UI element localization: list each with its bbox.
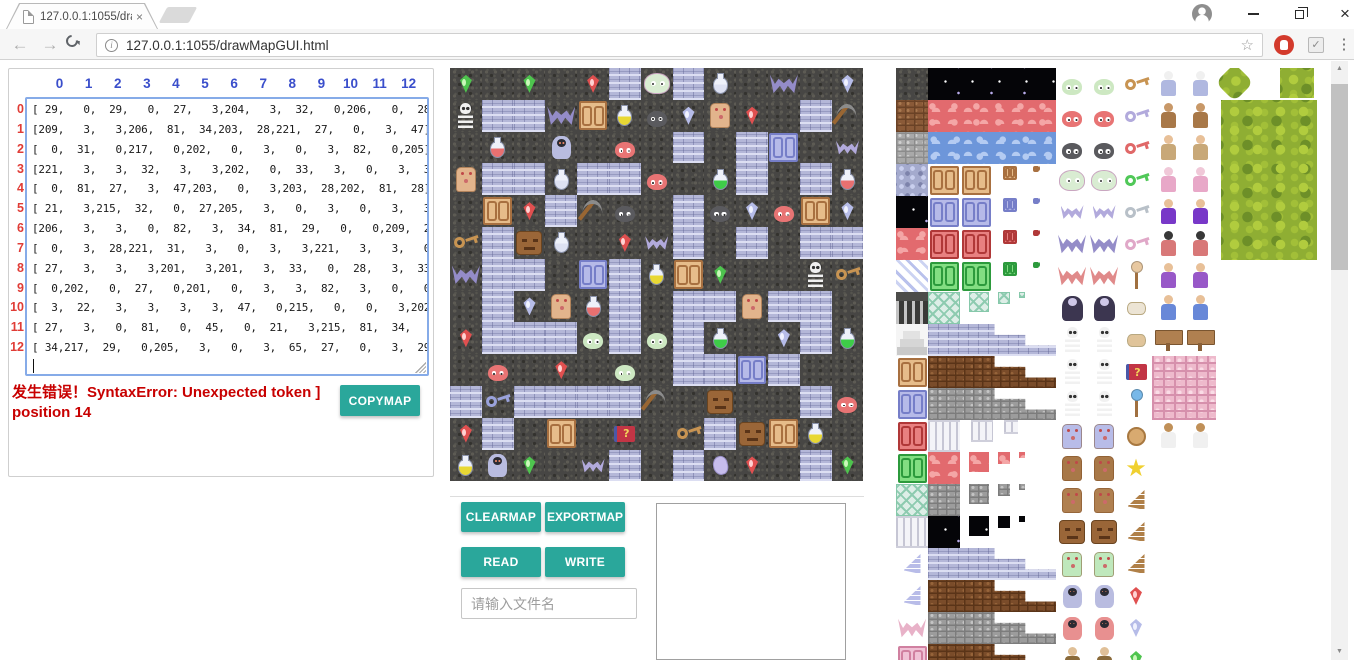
green-gem-tile[interactable] (450, 68, 482, 100)
black-slime-tile[interactable] (609, 195, 641, 227)
small-bush-tile[interactable] (1215, 68, 1253, 102)
magic-book-tile[interactable]: ? (609, 418, 641, 450)
green-slime-tile[interactable] (609, 354, 641, 386)
wall-tile[interactable] (609, 450, 641, 482)
wall-tile[interactable] (514, 386, 546, 418)
url-bar[interactable]: i 127.0.0.1:1055/drawMapGUI.html ☆ (96, 33, 1263, 57)
small-bat-tile[interactable] (832, 132, 864, 164)
wall-tile[interactable] (609, 322, 641, 354)
big-slime-palette-tile[interactable] (1056, 164, 1088, 196)
tan-door-tile[interactable] (545, 418, 577, 450)
skeleton-warrior-palette-tile[interactable] (1088, 356, 1120, 388)
bookmark-star-icon[interactable]: ☆ (1241, 36, 1254, 54)
medal-palette-tile[interactable] (1120, 420, 1152, 452)
scrollbar-down-icon[interactable]: ▼ (1331, 644, 1348, 660)
ice-stripe-palette-tile[interactable] (896, 260, 928, 292)
wall-tile[interactable] (482, 227, 514, 259)
blue-gem-tile[interactable] (768, 322, 800, 354)
big-bat-palette-tile[interactable] (1088, 228, 1120, 260)
green-potion-tile[interactable] (704, 163, 736, 195)
column-palette-tile[interactable] (896, 516, 928, 548)
old-wizard-palette-tile[interactable] (1184, 68, 1216, 100)
prince-palette-tile[interactable] (1184, 260, 1216, 292)
lattice-palette-tile[interactable] (928, 292, 960, 324)
floor-tile[interactable] (736, 68, 768, 100)
column-palette-tile[interactable] (928, 420, 960, 452)
tan-door-tile[interactable] (800, 195, 832, 227)
wall-tile[interactable] (704, 418, 736, 450)
vampire-palette-tile[interactable] (1056, 292, 1088, 324)
lava-palette-tile[interactable] (998, 452, 1010, 464)
big-bat-palette-tile[interactable] (1056, 228, 1088, 260)
wall-tile[interactable] (577, 386, 609, 418)
floor-tile[interactable] (768, 227, 800, 259)
gray-wall-palette-tile[interactable] (928, 484, 960, 516)
red-slime-tile[interactable] (832, 386, 864, 418)
blue-boy-palette-tile[interactable] (1152, 292, 1184, 324)
blue-gem-tile[interactable] (514, 291, 546, 323)
green-potion-tile[interactable] (704, 322, 736, 354)
pickaxe-tile[interactable] (577, 195, 609, 227)
lattice-palette-tile[interactable] (896, 484, 928, 516)
floor-tile[interactable] (577, 227, 609, 259)
pink-wall-palette-tile[interactable] (1152, 388, 1216, 420)
red-bat-palette-tile[interactable] (1056, 260, 1088, 292)
tan-door-palette-tile[interactable] (928, 164, 960, 196)
reload-button[interactable] (66, 35, 90, 59)
red-slime-palette-tile[interactable] (1056, 100, 1088, 132)
copymap-button[interactable]: COPYMAP (340, 385, 420, 416)
red-door-palette-tile[interactable] (896, 420, 928, 452)
wall-tile[interactable] (673, 450, 705, 482)
wall-tile[interactable] (609, 386, 641, 418)
silver-potion-tile[interactable] (545, 227, 577, 259)
blue-door-palette-tile[interactable] (1001, 196, 1018, 213)
tan-door-palette-tile[interactable] (896, 356, 928, 388)
wall-tile[interactable] (800, 450, 832, 482)
floor-tile[interactable] (832, 354, 864, 386)
red-ghost-palette-tile[interactable] (1056, 612, 1088, 644)
floor-tile[interactable] (641, 450, 673, 482)
extension-check-icon[interactable]: ✓ (1308, 37, 1324, 53)
wall-tile[interactable] (545, 195, 577, 227)
floor-tile[interactable] (545, 450, 577, 482)
column-palette-tile[interactable] (971, 420, 993, 442)
blue-key-tile[interactable] (482, 386, 514, 418)
wall-tile[interactable] (800, 322, 832, 354)
wall-tile[interactable] (609, 68, 641, 100)
wall-tile[interactable] (673, 354, 705, 386)
wood-sign-palette-tile[interactable] (1152, 324, 1184, 356)
page-scrollbar[interactable]: ▲ ▼ (1331, 61, 1348, 660)
lavender-key-palette-tile[interactable] (1120, 100, 1152, 132)
red-hood-palette-tile[interactable] (1152, 228, 1184, 260)
vampire-palette-tile[interactable] (1088, 292, 1120, 324)
green-door-palette-tile[interactable] (1031, 260, 1040, 269)
pickaxe-tile[interactable] (832, 100, 864, 132)
floor-tile[interactable] (800, 132, 832, 164)
green-gem-tile[interactable] (514, 450, 546, 482)
black-slime-tile[interactable] (704, 195, 736, 227)
blue-door-tile[interactable] (768, 132, 800, 164)
brown-wing-palette-tile[interactable] (1120, 484, 1152, 516)
browser-menu-icon[interactable]: ⋮ (1336, 33, 1352, 57)
green-door-palette-tile[interactable] (1001, 260, 1018, 277)
floor-tile[interactable] (768, 450, 800, 482)
green-key-palette-tile[interactable] (1120, 164, 1152, 196)
wall-tile[interactable] (514, 259, 546, 291)
brown-wing-palette-tile[interactable] (1120, 516, 1152, 548)
flag-wing-palette-tile[interactable] (1120, 548, 1152, 580)
wall-tile[interactable] (482, 291, 514, 323)
red-door-palette-tile[interactable] (1031, 228, 1040, 237)
wall-tile[interactable] (768, 354, 800, 386)
fighter-palette-tile[interactable] (1152, 132, 1184, 164)
matrix-textarea[interactable]: [ 29, 0, 29, 0, 27, 3,204, 3, 32, 0,206,… (25, 97, 429, 376)
green-gem-palette-tile[interactable] (1120, 644, 1152, 660)
browser-tab[interactable]: 127.0.0.1:1055/drawMa × (6, 3, 158, 29)
column-palette-tile[interactable] (1004, 420, 1018, 434)
wall-tile[interactable] (673, 227, 705, 259)
ghost-tile[interactable] (545, 132, 577, 164)
wall-tile[interactable] (514, 163, 546, 195)
stone-face-palette-tile[interactable] (1056, 516, 1088, 548)
lattice-palette-tile[interactable] (998, 292, 1010, 304)
silver-potion-tile[interactable] (545, 163, 577, 195)
red-slime-tile[interactable] (641, 163, 673, 195)
tan-scroll-palette-tile[interactable] (1120, 324, 1152, 356)
wall-tile[interactable] (704, 354, 736, 386)
wall-tile[interactable] (800, 100, 832, 132)
floor-tile[interactable] (545, 259, 577, 291)
wall-tile[interactable] (800, 386, 832, 418)
gray-wall-palette-tile[interactable] (928, 388, 1056, 420)
floor-tile[interactable] (832, 418, 864, 450)
floor-tile[interactable] (545, 68, 577, 100)
green-door-palette-tile[interactable] (960, 260, 992, 292)
red-gem-tile[interactable] (609, 227, 641, 259)
fairy-palette-tile[interactable] (1152, 164, 1184, 196)
skeleton-palette-tile[interactable] (1088, 324, 1120, 356)
floor-tile[interactable] (800, 354, 832, 386)
floor-palette-tile[interactable] (896, 68, 928, 100)
stone-face-tile[interactable] (704, 386, 736, 418)
tan-door-tile[interactable] (482, 195, 514, 227)
brown-golem-palette-tile[interactable] (1056, 452, 1088, 484)
big-bat-tile[interactable] (545, 100, 577, 132)
floor-tile[interactable] (641, 418, 673, 450)
tan-door-palette-tile[interactable] (1001, 164, 1018, 181)
wall-tile[interactable] (545, 386, 577, 418)
wall-tile[interactable] (673, 291, 705, 323)
floor-tile[interactable] (577, 354, 609, 386)
skeleton-tile[interactable] (450, 100, 482, 132)
ghost-palette-tile[interactable] (1088, 580, 1120, 612)
gray-key-palette-tile[interactable] (1120, 196, 1152, 228)
wall-tile[interactable] (673, 132, 705, 164)
skeleton-captain-palette-tile[interactable] (1056, 388, 1088, 420)
golem-tile[interactable] (736, 291, 768, 323)
window-restore-button[interactable] (1284, 0, 1314, 28)
stone-face-palette-tile[interactable] (1088, 516, 1120, 548)
big-bat-tile[interactable] (768, 68, 800, 100)
wall-tile[interactable] (832, 227, 864, 259)
blue-door-palette-tile[interactable] (928, 196, 960, 228)
skeleton-palette-tile[interactable] (1056, 324, 1088, 356)
green-potion-tile[interactable] (832, 322, 864, 354)
floor-tile[interactable] (736, 322, 768, 354)
night-sky-palette-tile[interactable] (928, 68, 1056, 100)
brown-golem-palette-tile[interactable] (1088, 452, 1120, 484)
scrollbar-up-icon[interactable]: ▲ (1331, 61, 1348, 77)
ghost-tile[interactable] (482, 450, 514, 482)
red-door-palette-tile[interactable] (928, 228, 960, 260)
gray-wall-palette-tile[interactable] (969, 484, 989, 504)
back-button[interactable]: ← (8, 33, 32, 57)
gray-wall-palette-tile[interactable] (1019, 484, 1025, 490)
floor-tile[interactable] (514, 132, 546, 164)
green-gem-tile[interactable] (832, 450, 864, 482)
big-bat-tile[interactable] (450, 259, 482, 291)
blue-gem-tile[interactable] (832, 68, 864, 100)
princess-palette-tile[interactable] (1152, 420, 1184, 452)
wall-tile[interactable] (577, 163, 609, 195)
wall-tile[interactable] (673, 68, 705, 100)
page-info-icon[interactable]: i (105, 39, 118, 52)
wall-tile[interactable] (514, 322, 546, 354)
ghost-palette-tile[interactable] (1056, 580, 1088, 612)
wall-tile[interactable] (736, 132, 768, 164)
yellow-key-tile[interactable] (673, 418, 705, 450)
grate-palette-tile[interactable] (896, 292, 928, 324)
textarea-resize-grip[interactable] (415, 362, 426, 373)
tan-door-palette-tile[interactable] (1031, 164, 1040, 173)
url-text[interactable]: 127.0.0.1:1055/drawMapGUI.html (126, 38, 1241, 53)
tree-tile[interactable] (1280, 68, 1314, 98)
wall-tile[interactable] (482, 322, 514, 354)
stone-face-tile[interactable] (736, 418, 768, 450)
hat-man-palette-tile[interactable] (1088, 644, 1120, 660)
wall-tile[interactable] (673, 195, 705, 227)
floor-tile[interactable] (768, 259, 800, 291)
red-gem-tile[interactable] (545, 354, 577, 386)
lava-palette-tile[interactable] (1019, 452, 1025, 458)
wall-tile[interactable] (736, 227, 768, 259)
prince-palette-tile[interactable] (1152, 260, 1184, 292)
floor-tile[interactable] (641, 354, 673, 386)
red-scroll-palette-tile[interactable] (1120, 292, 1152, 324)
red-gem-tile[interactable] (577, 68, 609, 100)
wall-tile[interactable] (482, 163, 514, 195)
green-gem-tile[interactable] (704, 259, 736, 291)
big-slime-tile[interactable] (641, 68, 673, 100)
night-sky-palette-tile[interactable] (998, 516, 1010, 528)
blue-door-palette-tile[interactable] (960, 196, 992, 228)
night-sky-palette-tile[interactable] (969, 516, 989, 536)
lava-palette-tile[interactable] (928, 100, 1056, 132)
wall-tile[interactable] (673, 322, 705, 354)
blue-stone-palette-tile[interactable] (896, 164, 928, 196)
skeleton-warrior-palette-tile[interactable] (1056, 356, 1088, 388)
fighter-palette-tile[interactable] (1184, 132, 1216, 164)
floor-tile[interactable] (482, 68, 514, 100)
floor-tile[interactable] (673, 386, 705, 418)
hat-man-palette-tile[interactable] (1056, 644, 1088, 660)
tileset-palette[interactable]: ?★ (896, 68, 1317, 660)
lava-palette-tile[interactable] (896, 228, 928, 260)
red-potion-tile[interactable] (832, 163, 864, 195)
red-key-palette-tile[interactable] (1120, 132, 1152, 164)
tab-close-icon[interactable]: × (136, 10, 143, 24)
golem-tile[interactable] (545, 291, 577, 323)
wall-tile[interactable] (800, 291, 832, 323)
blue-knight-palette-tile[interactable] (1056, 420, 1088, 452)
green-slime-palette-tile[interactable] (1088, 68, 1120, 100)
stairs-palette-tile[interactable] (896, 324, 928, 356)
tan-door-tile[interactable] (577, 100, 609, 132)
brown-monk-palette-tile[interactable] (1152, 100, 1184, 132)
wall-tile[interactable] (482, 100, 514, 132)
map-canvas[interactable]: ? (450, 68, 863, 481)
pickaxe-tile[interactable] (641, 386, 673, 418)
golem-warrior-palette-tile[interactable] (1056, 484, 1088, 516)
forward-button[interactable]: → (38, 33, 62, 57)
black-slime-tile[interactable] (641, 100, 673, 132)
read-button[interactable]: READ (461, 547, 541, 577)
red-potion-tile[interactable] (577, 291, 609, 323)
clearmap-button[interactable]: CLEARMAP (461, 502, 541, 532)
floor-tile[interactable] (704, 132, 736, 164)
princess-palette-tile[interactable] (1184, 420, 1216, 452)
scrollbar-thumb[interactable] (1331, 84, 1348, 270)
green-slime-palette-tile[interactable] (1056, 68, 1088, 100)
wall-tile[interactable] (450, 386, 482, 418)
conch-tile[interactable] (704, 450, 736, 482)
filename-input[interactable] (461, 588, 637, 619)
water-palette-tile[interactable] (928, 132, 1056, 164)
floor-tile[interactable] (514, 354, 546, 386)
floor-tile[interactable] (704, 227, 736, 259)
new-tab-button[interactable] (159, 7, 198, 23)
floor-tile[interactable] (450, 354, 482, 386)
green-gem-tile[interactable] (514, 68, 546, 100)
blue-wall-palette-tile[interactable] (928, 548, 1056, 580)
red-slime-tile[interactable] (482, 354, 514, 386)
tan-door-tile[interactable] (768, 418, 800, 450)
red-potion-tile[interactable] (482, 132, 514, 164)
floor-tile[interactable] (577, 132, 609, 164)
lavender-wing-palette-tile[interactable] (896, 548, 928, 580)
window-minimize-button[interactable] (1238, 0, 1268, 28)
pink-wall-palette-tile[interactable] (1152, 356, 1216, 388)
blue-door-tile[interactable] (577, 259, 609, 291)
lattice-palette-tile[interactable] (969, 292, 989, 312)
yellow-potion-tile[interactable] (800, 418, 832, 450)
floor-tile[interactable] (800, 68, 832, 100)
skeleton-tile[interactable] (800, 259, 832, 291)
pink-bat-palette-tile[interactable] (896, 612, 928, 644)
green-door-palette-tile[interactable] (928, 260, 960, 292)
old-wizard-palette-tile[interactable] (1152, 68, 1184, 100)
golem-tile[interactable] (450, 163, 482, 195)
wall-tile[interactable] (545, 322, 577, 354)
red-gem-tile[interactable] (736, 100, 768, 132)
red-gem-tile[interactable] (736, 450, 768, 482)
skeleton-captain-palette-tile[interactable] (1088, 388, 1120, 420)
night-sky-palette-tile[interactable] (896, 196, 928, 228)
yellow-star-palette-tile[interactable]: ★ (1120, 452, 1152, 484)
wall-tile[interactable] (800, 163, 832, 195)
red-gem-tile[interactable] (514, 195, 546, 227)
wall-tile[interactable] (482, 418, 514, 450)
green-door-palette-tile[interactable] (896, 452, 928, 484)
black-slime-palette-tile[interactable] (1056, 132, 1088, 164)
blue-gem-palette-tile[interactable] (1120, 612, 1152, 644)
wall-tile[interactable] (768, 291, 800, 323)
profile-avatar-icon[interactable] (1192, 4, 1212, 24)
wall-tile[interactable] (514, 100, 546, 132)
floor-tile[interactable] (768, 163, 800, 195)
yellow-potion-tile[interactable] (609, 100, 641, 132)
wall-tile[interactable] (609, 163, 641, 195)
red-gem-tile[interactable] (450, 418, 482, 450)
floor-tile[interactable] (736, 259, 768, 291)
brown-wall-palette-tile[interactable] (928, 644, 1056, 660)
black-slime-palette-tile[interactable] (1088, 132, 1120, 164)
wall-tile[interactable] (609, 291, 641, 323)
orb-staff-palette-tile[interactable] (1120, 388, 1152, 420)
purple-wizard-palette-tile[interactable] (1184, 196, 1216, 228)
golem-tile[interactable] (704, 100, 736, 132)
blue-wall-palette-tile[interactable] (928, 324, 1056, 356)
export-output-box[interactable] (656, 503, 846, 660)
small-bat-tile[interactable] (641, 227, 673, 259)
brown-brick-palette-tile[interactable] (896, 100, 928, 132)
blue-door-palette-tile[interactable] (1031, 196, 1040, 205)
blue-gem-tile[interactable] (673, 100, 705, 132)
fairy-palette-tile[interactable] (1184, 164, 1216, 196)
wall-tile[interactable] (609, 259, 641, 291)
floor-tile[interactable] (641, 132, 673, 164)
floor-tile[interactable] (450, 132, 482, 164)
red-door-palette-tile[interactable] (1001, 228, 1018, 245)
red-door-palette-tile[interactable] (960, 228, 992, 260)
wall-tile[interactable] (704, 291, 736, 323)
red-slime-tile[interactable] (768, 195, 800, 227)
lavender-wing-palette-tile[interactable] (896, 580, 928, 612)
large-bush-tile[interactable] (1221, 100, 1317, 260)
night-sky-palette-tile[interactable] (928, 516, 960, 548)
blue-door-tile[interactable] (736, 354, 768, 386)
gray-wall-palette-tile[interactable] (928, 612, 1056, 644)
floor-tile[interactable] (832, 291, 864, 323)
floor-tile[interactable] (768, 386, 800, 418)
night-sky-palette-tile[interactable] (1019, 516, 1025, 522)
yellow-potion-tile[interactable] (450, 450, 482, 482)
yellow-key-palette-tile[interactable] (1120, 68, 1152, 100)
red-slime-palette-tile[interactable] (1088, 100, 1120, 132)
window-close-button[interactable]: × (1330, 0, 1354, 28)
silver-potion-tile[interactable] (704, 68, 736, 100)
red-ghost-palette-tile[interactable] (1088, 612, 1120, 644)
golem-warrior-palette-tile[interactable] (1088, 484, 1120, 516)
extension-red-icon[interactable] (1274, 35, 1294, 55)
small-bat-palette-tile[interactable] (1088, 196, 1120, 228)
exportmap-button[interactable]: EXPORTMAP (545, 502, 625, 532)
floor-tile[interactable] (641, 291, 673, 323)
pink-door-palette-tile[interactable] (896, 644, 928, 660)
yellow-potion-tile[interactable] (641, 259, 673, 291)
